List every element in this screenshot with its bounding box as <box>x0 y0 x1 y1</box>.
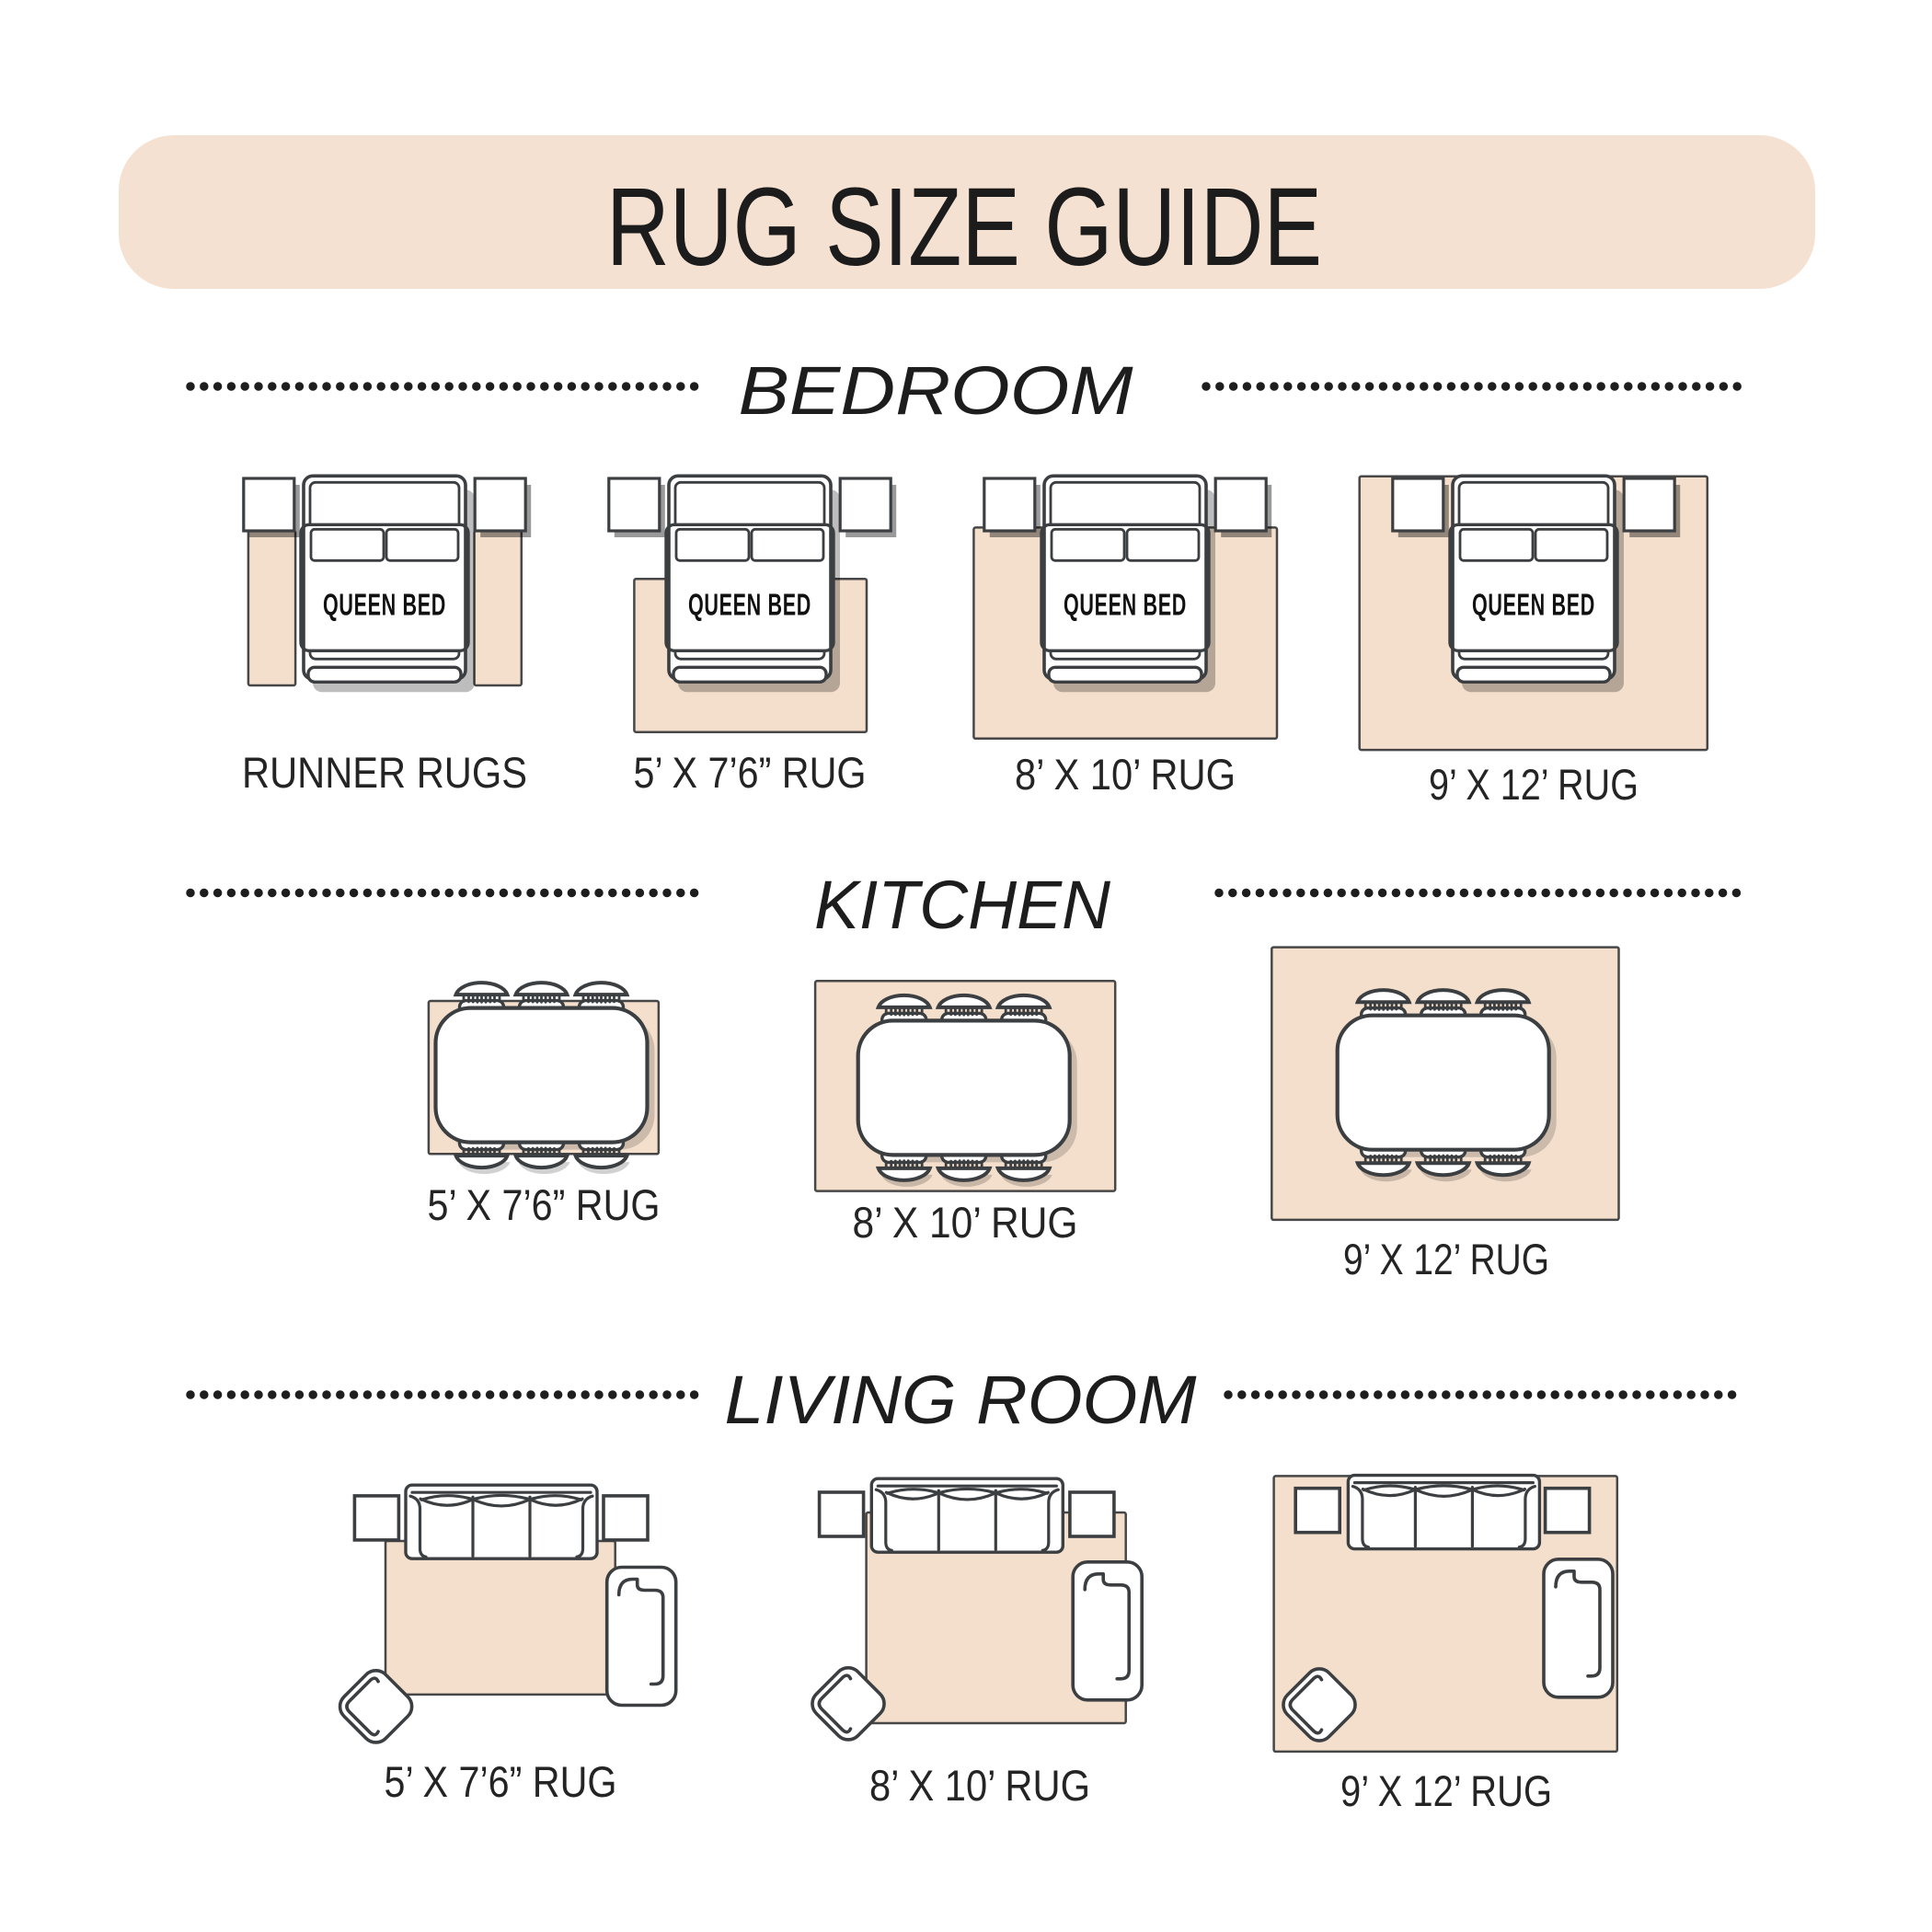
svg-text:8’ X 10’ RUG: 8’ X 10’ RUG <box>853 1198 1078 1247</box>
svg-text:5’ X 7’6” RUG: 5’ X 7’6” RUG <box>385 1757 617 1806</box>
svg-text:5’ X 7’6” RUG: 5’ X 7’6” RUG <box>428 1180 661 1229</box>
svg-text:9’ X 12’ RUG: 9’ X 12’ RUG <box>1429 760 1639 809</box>
svg-text:8’ X 10’ RUG: 8’ X 10’ RUG <box>1015 750 1236 799</box>
svg-text:9’ X 12’ RUG: 9’ X 12’ RUG <box>1343 1235 1549 1283</box>
svg-text:BEDROOM: BEDROOM <box>739 352 1133 429</box>
svg-text:LIVING ROOM: LIVING ROOM <box>725 1362 1197 1438</box>
svg-text:8’ X 10’ RUG: 8’ X 10’ RUG <box>869 1761 1090 1810</box>
svg-text:9’ X 12’ RUG: 9’ X 12’ RUG <box>1340 1766 1552 1815</box>
svg-text:RUNNER RUGS: RUNNER RUGS <box>242 748 527 797</box>
svg-text:RUG SIZE GUIDE: RUG SIZE GUIDE <box>606 164 1322 289</box>
svg-text:KITCHEN: KITCHEN <box>814 867 1111 943</box>
svg-text:5’ X 7’6” RUG: 5’ X 7’6” RUG <box>634 748 867 797</box>
